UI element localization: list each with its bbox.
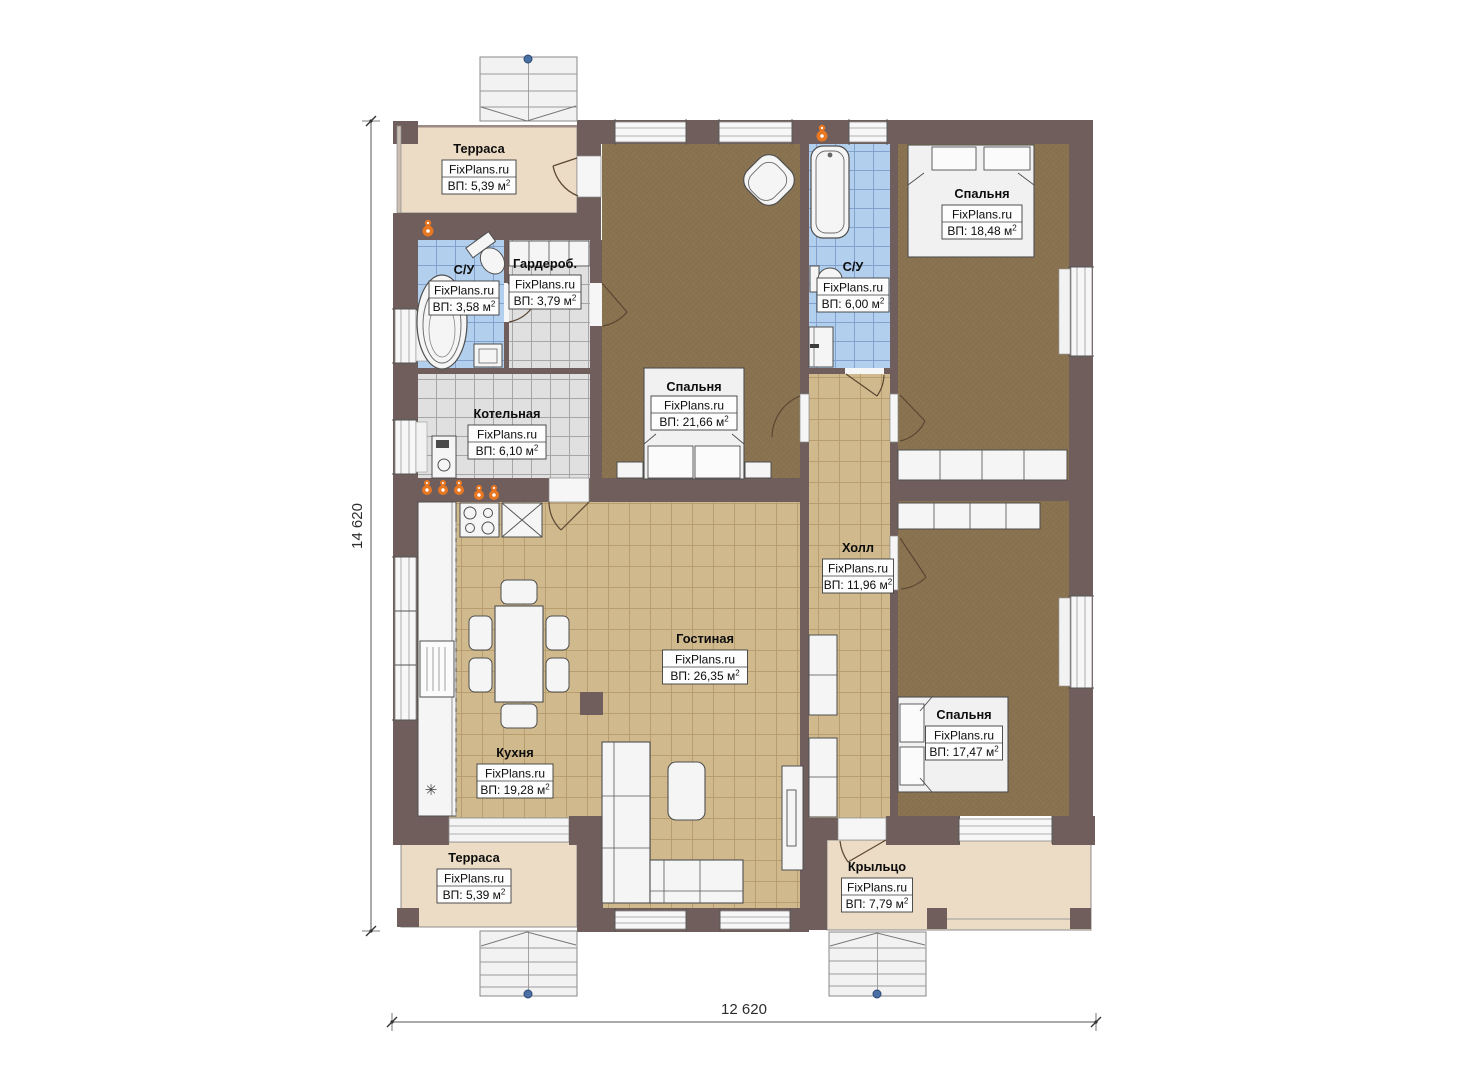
svg-text:ВП: 18,48 м2: ВП: 18,48 м2	[947, 224, 1017, 239]
svg-text:ВП: 3,79 м2: ВП: 3,79 м2	[514, 294, 577, 309]
svg-text:ВП: 26,35 м2: ВП: 26,35 м2	[670, 669, 740, 684]
svg-text:ВП: 5,39 м2: ВП: 5,39 м2	[443, 888, 506, 903]
svg-text:FixPlans.ru: FixPlans.ru	[675, 653, 735, 667]
svg-text:Кухня: Кухня	[496, 745, 533, 760]
svg-text:✳: ✳	[425, 782, 438, 799]
svg-text:FixPlans.ru: FixPlans.ru	[952, 208, 1012, 222]
svg-text:FixPlans.ru: FixPlans.ru	[485, 767, 545, 781]
svg-text:14 620: 14 620	[349, 503, 366, 549]
svg-text:FixPlans.ru: FixPlans.ru	[664, 399, 724, 413]
svg-text:ВП: 17,47 м2: ВП: 17,47 м2	[929, 745, 999, 760]
svg-text:FixPlans.ru: FixPlans.ru	[934, 729, 994, 743]
svg-text:С/У: С/У	[843, 259, 865, 274]
svg-text:FixPlans.ru: FixPlans.ru	[449, 163, 509, 177]
svg-text:ВП: 21,66 м2: ВП: 21,66 м2	[659, 415, 729, 430]
svg-text:FixPlans.ru: FixPlans.ru	[434, 284, 494, 298]
svg-text:ВП: 7,79 м2: ВП: 7,79 м2	[846, 897, 909, 912]
svg-text:Терраса: Терраса	[453, 141, 505, 156]
svg-text:Спальня: Спальня	[954, 186, 1009, 201]
svg-text:FixPlans.ru: FixPlans.ru	[847, 881, 907, 895]
svg-text:ВП: 19,28 м2: ВП: 19,28 м2	[480, 783, 550, 798]
svg-text:FixPlans.ru: FixPlans.ru	[823, 281, 883, 295]
svg-text:ВП: 11,96 м2: ВП: 11,96 м2	[824, 578, 893, 593]
svg-text:Гостиная: Гостиная	[676, 631, 734, 646]
svg-text:Гардероб.: Гардероб.	[513, 256, 577, 271]
svg-text:С/У: С/У	[454, 262, 476, 277]
svg-text:FixPlans.ru: FixPlans.ru	[444, 872, 504, 886]
svg-text:Спальня: Спальня	[936, 707, 991, 722]
svg-text:12 620: 12 620	[721, 1001, 767, 1018]
svg-text:Холл: Холл	[842, 540, 874, 555]
svg-text:FixPlans.ru: FixPlans.ru	[477, 428, 537, 442]
svg-text:Спальня: Спальня	[666, 379, 721, 394]
svg-text:Терраса: Терраса	[448, 850, 500, 865]
svg-text:ВП: 5,39 м2: ВП: 5,39 м2	[448, 179, 511, 194]
svg-text:FixPlans.ru: FixPlans.ru	[515, 278, 575, 292]
svg-text:Крыльцо: Крыльцо	[848, 859, 906, 874]
svg-text:ВП: 6,00 м2: ВП: 6,00 м2	[822, 297, 885, 312]
svg-text:ВП: 6,10 м2: ВП: 6,10 м2	[476, 444, 539, 459]
svg-text:FixPlans.ru: FixPlans.ru	[828, 562, 888, 576]
svg-text:Котельная: Котельная	[473, 406, 540, 421]
svg-text:ВП: 3,58 м2: ВП: 3,58 м2	[433, 300, 496, 315]
